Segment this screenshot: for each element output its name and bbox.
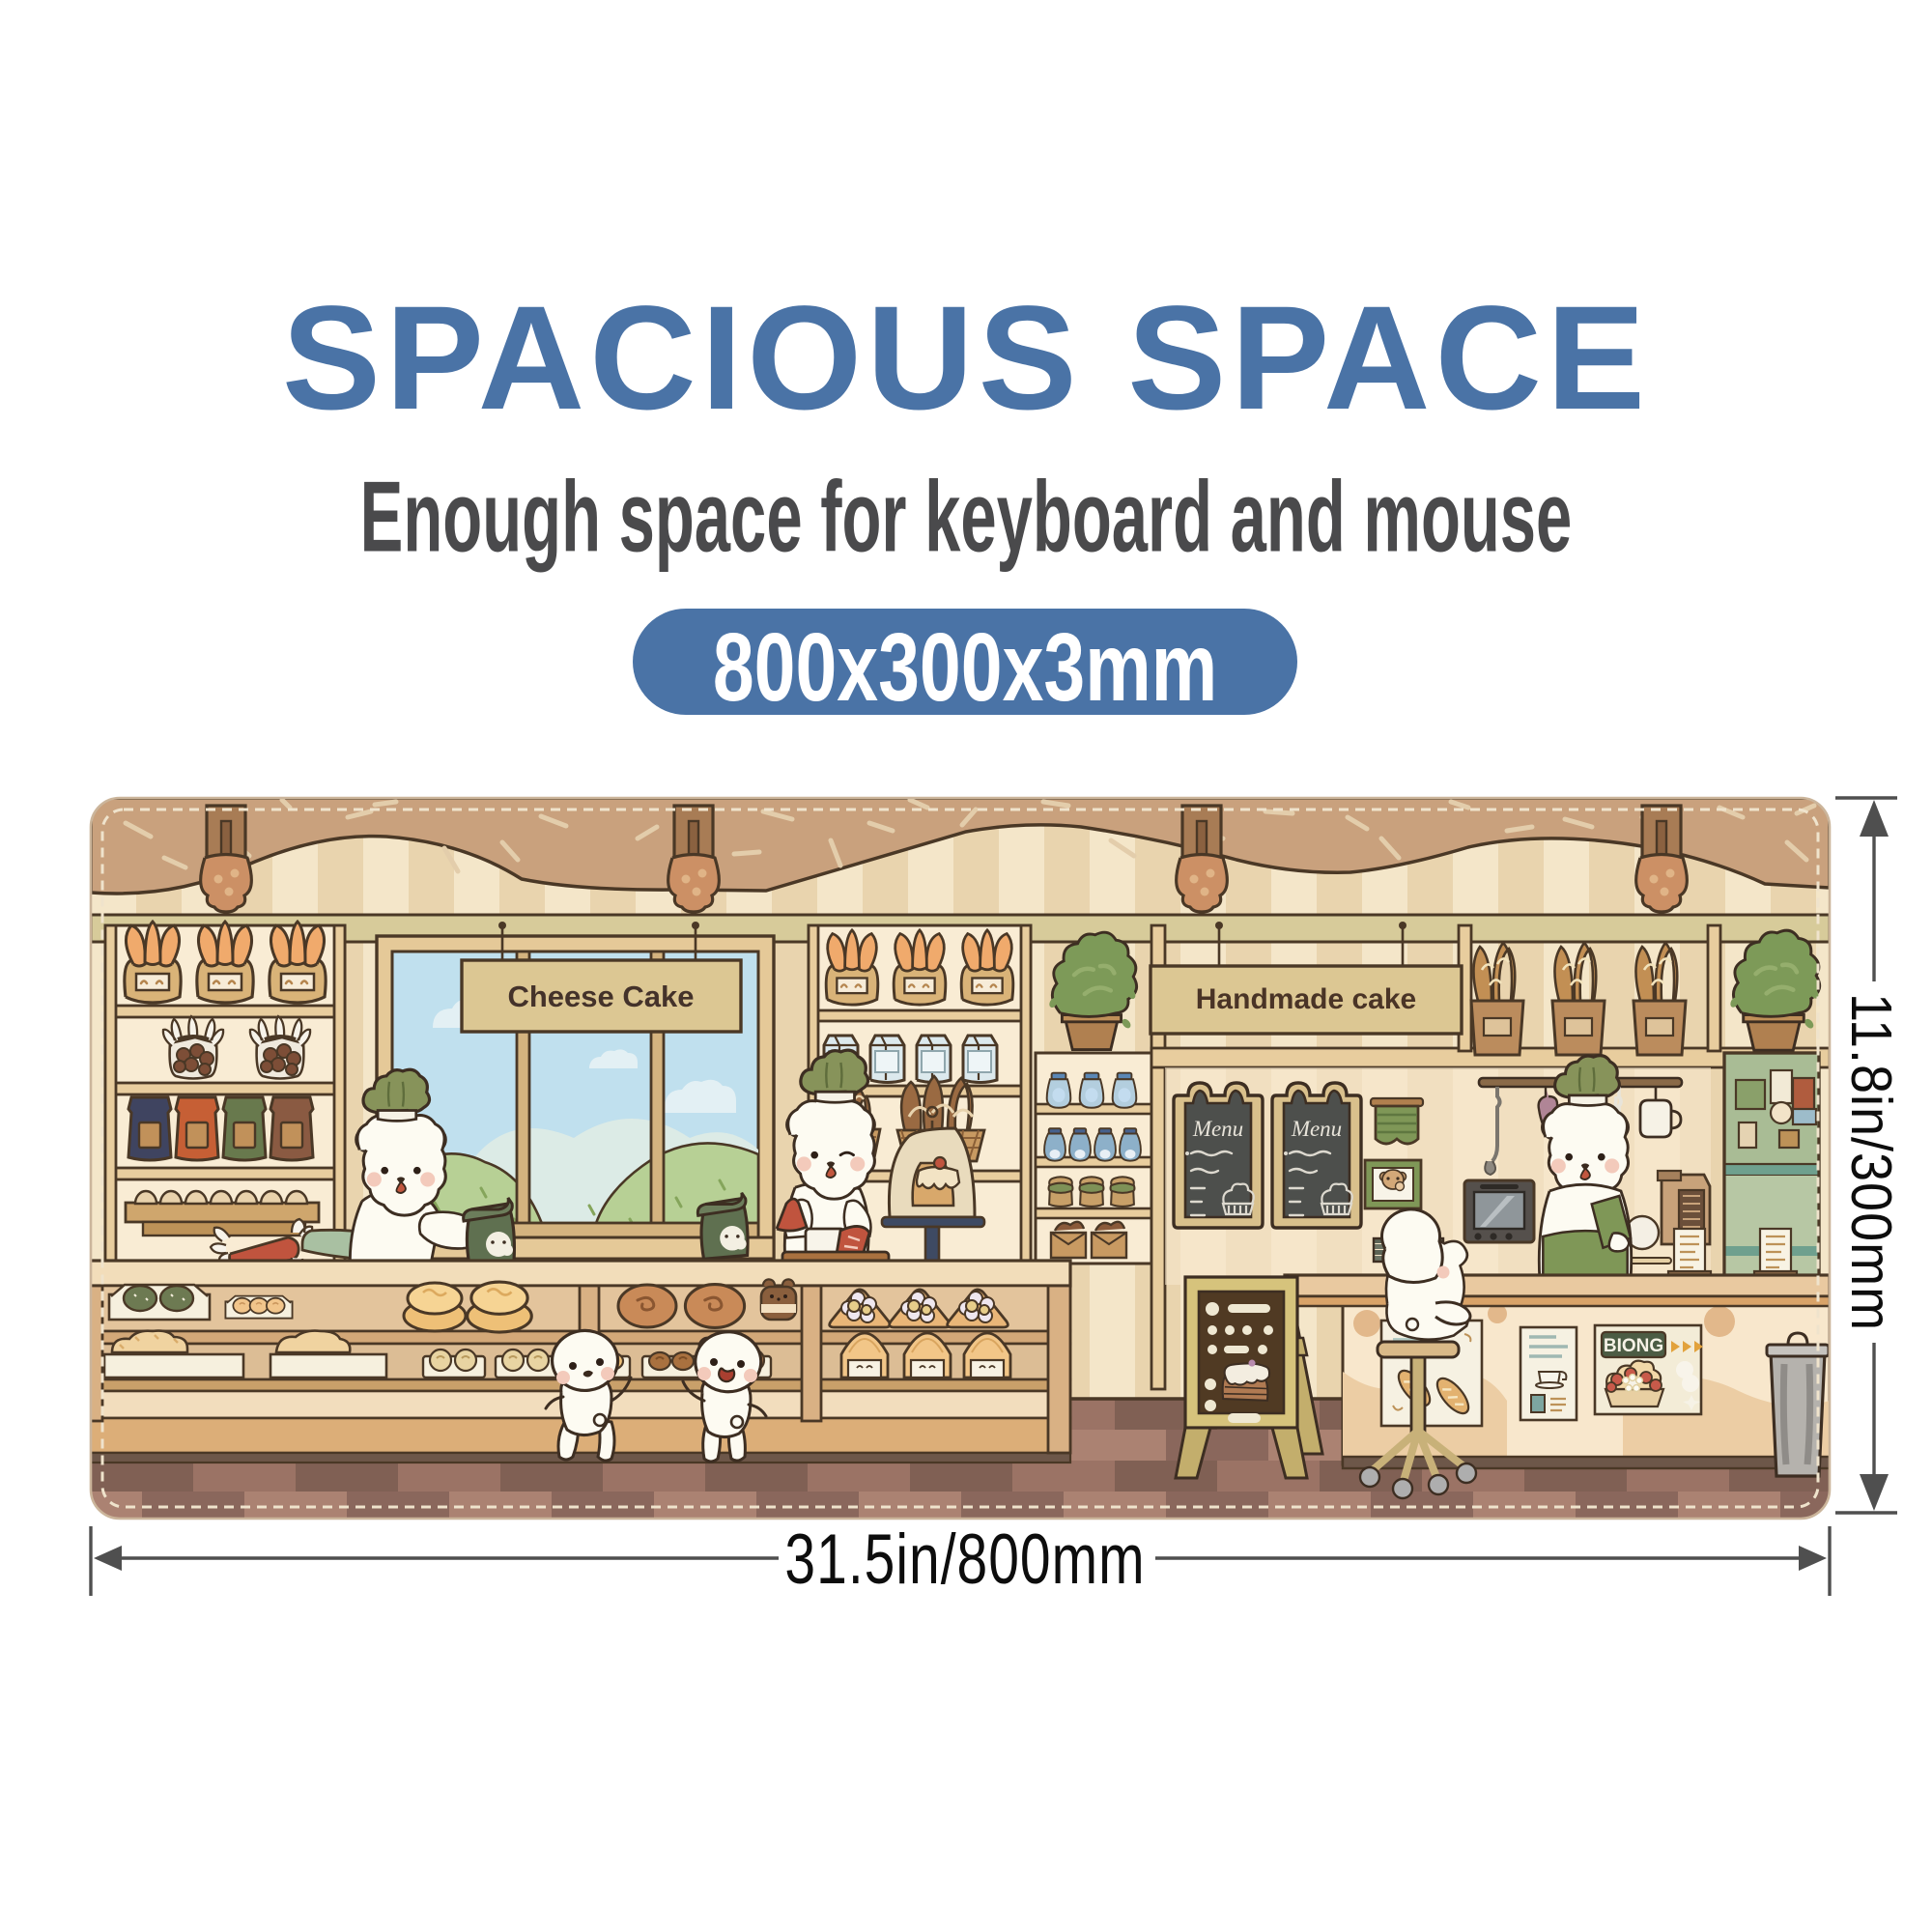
svg-text:11.8in/300mm: 11.8in/300mm <box>1838 993 1902 1331</box>
svg-text:31.5in/800mm: 31.5in/800mm <box>784 1520 1145 1598</box>
svg-text:BIONG: BIONG <box>1604 1336 1663 1356</box>
svg-text:Cheese Cake: Cheese Cake <box>507 980 694 1013</box>
svg-text:Handmade cake: Handmade cake <box>1196 983 1416 1015</box>
